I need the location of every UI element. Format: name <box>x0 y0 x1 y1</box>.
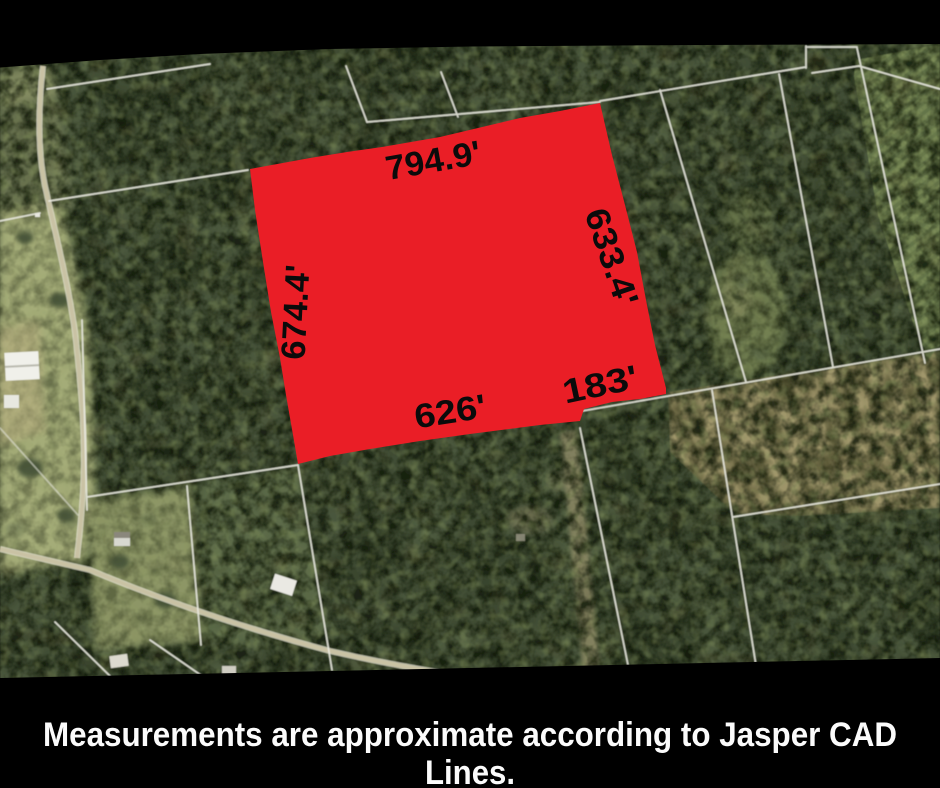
svg-text:Lines.: Lines. <box>425 754 515 788</box>
svg-text:Measurements are approximate a: Measurements are approximate according t… <box>43 716 897 754</box>
svg-text:674.4': 674.4' <box>275 264 318 361</box>
